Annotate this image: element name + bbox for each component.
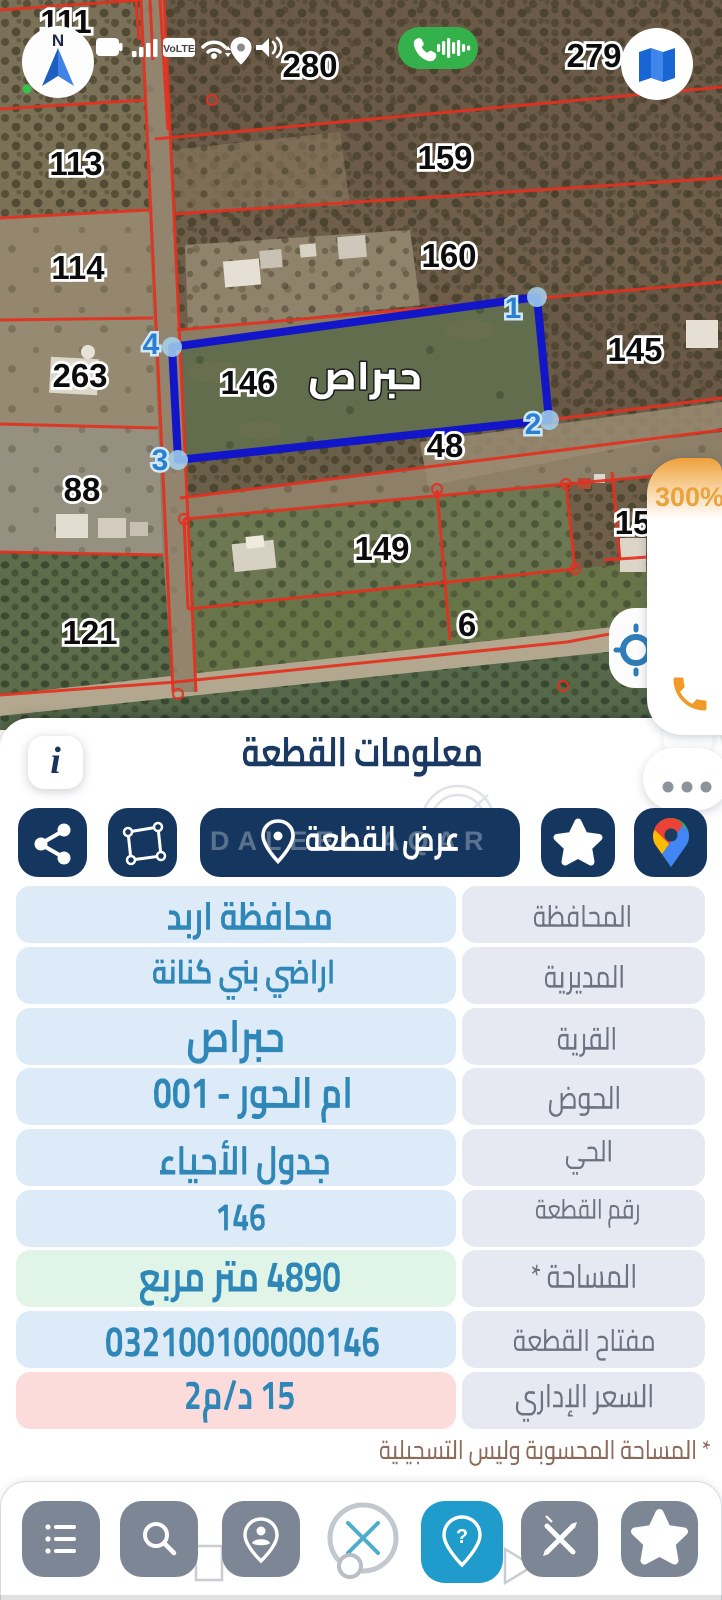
svg-text:88: 88 — [64, 471, 101, 508]
svg-text:146: 146 — [220, 364, 275, 401]
svg-text:121: 121 — [62, 614, 117, 651]
svg-text:N: N — [52, 31, 64, 50]
svg-text:114: 114 — [51, 249, 105, 286]
svg-text:VoLTE: VoLTE — [163, 43, 195, 55]
svg-text:2: 2 — [525, 408, 542, 441]
svg-text:6: 6 — [458, 606, 476, 643]
svg-text:4: 4 — [143, 328, 160, 361]
svg-text:1: 1 — [505, 292, 522, 325]
svg-text:145: 145 — [607, 331, 662, 368]
svg-text:263: 263 — [52, 357, 107, 394]
svg-text:279: 279 — [566, 37, 621, 74]
svg-text:3: 3 — [152, 444, 169, 477]
svg-text:149: 149 — [354, 530, 409, 567]
svg-text:159: 159 — [417, 139, 472, 176]
svg-text:?: ? — [456, 1526, 468, 1548]
svg-text:15: 15 — [615, 504, 652, 541]
svg-text:280: 280 — [282, 47, 337, 84]
svg-text:113: 113 — [49, 145, 102, 182]
svg-text:160: 160 — [421, 237, 476, 274]
svg-text:48: 48 — [427, 427, 464, 464]
